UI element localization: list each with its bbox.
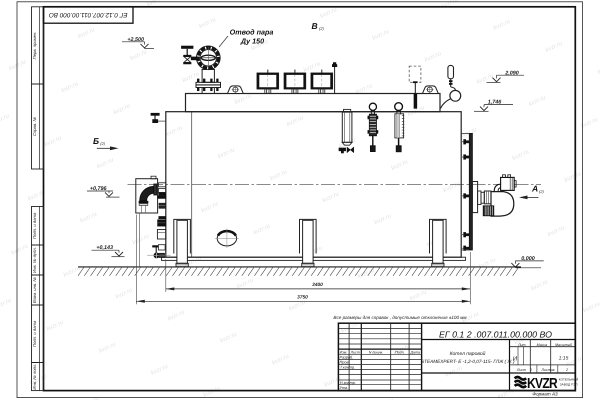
svg-text:Лист: Лист — [350, 350, 360, 354]
svg-text:Листов: Листов — [540, 368, 554, 372]
svg-text:N докум.: N докум. — [369, 350, 384, 354]
svg-text:1: 1 — [530, 368, 532, 372]
svg-text:Лист: Лист — [516, 368, 526, 372]
svg-text:В: В — [312, 21, 318, 31]
svg-text:2,090: 2,090 — [504, 70, 519, 76]
svg-text:Б: Б — [93, 136, 99, 146]
svg-text:Отвод пара: Отвод пара — [230, 28, 274, 37]
svg-text:Взам. инв. №: Взам. инв. № — [32, 277, 37, 303]
svg-text:Подп.: Подп. — [395, 350, 405, 354]
svg-text:3750: 3750 — [297, 295, 308, 301]
svg-text:Инв. № дубл.: Инв. № дубл. — [32, 247, 37, 273]
svg-text:Перв. примен.: Перв. примен. — [32, 31, 37, 59]
svg-text:Лит.: Лит. — [517, 343, 526, 347]
svg-text:Утв.: Утв. — [340, 386, 349, 390]
svg-text:Справ. №: Справ. № — [32, 117, 37, 136]
svg-text:Н.контр.: Н.контр. — [340, 381, 356, 385]
svg-text:Инв. № подл.: Инв. № подл. — [32, 364, 37, 390]
svg-text:0,000: 0,000 — [521, 256, 535, 262]
svg-text:Дата: Дата — [410, 350, 420, 354]
svg-text:Масса: Масса — [537, 343, 548, 347]
svg-text:Все размеры для справок , допу: Все размеры для справок , допустимые отк… — [333, 315, 467, 320]
svg-text:И: И — [513, 355, 518, 362]
svg-text:ЗАВОД РЭП: ЗАВОД РЭП — [560, 383, 578, 387]
svg-text:Масштаб: Масштаб — [555, 343, 573, 347]
svg-text:Котел паровой: Котел паровой — [450, 351, 486, 357]
svg-text:Разраб.: Разраб. — [340, 356, 354, 360]
svg-text:3400: 3400 — [312, 282, 323, 288]
svg-text:(2): (2) — [539, 189, 545, 194]
svg-text:Подп. и дата: Подп. и дата — [32, 320, 37, 347]
svg-text:Ду 150: Ду 150 — [240, 37, 264, 46]
svg-text:STEAMEXPERT- Е -1,2-0,07-115-: STEAMEXPERT- Е -1,2-0,07-115- ГЛЖ ( Ж ) — [421, 359, 515, 364]
svg-text:Подп. и дата: Подп. и дата — [32, 212, 37, 239]
svg-text:Изм.: Изм. — [340, 350, 348, 354]
svg-text:ЕГ 0.1 2 .007.011.00.000 ВО: ЕГ 0.1 2 .007.011.00.000 ВО — [439, 329, 552, 339]
svg-text:(2): (2) — [319, 26, 325, 31]
svg-text:А: А — [531, 183, 538, 193]
svg-text:КОТЕЛЬНЫЙ: КОТЕЛЬНЫЙ — [559, 378, 578, 382]
svg-text:KVZR: KVZR — [527, 376, 558, 392]
svg-text:ЕГ 0.12.007.011.00.000 ВО: ЕГ 0.12.007.011.00.000 ВО — [49, 11, 128, 18]
svg-text:Пров.: Пров. — [340, 361, 350, 365]
svg-text:+0,143: +0,143 — [96, 245, 113, 251]
svg-text:+0,796: +0,796 — [90, 186, 108, 192]
svg-text:Формат А3: Формат А3 — [532, 391, 558, 396]
svg-text:1:15: 1:15 — [559, 356, 569, 362]
svg-text:+2,500: +2,500 — [127, 37, 144, 43]
svg-text:1,746: 1,746 — [488, 100, 502, 106]
svg-text:Т.контр.: Т.контр. — [340, 366, 355, 370]
svg-text:2: 2 — [565, 368, 568, 372]
svg-text:(2): (2) — [100, 141, 106, 146]
